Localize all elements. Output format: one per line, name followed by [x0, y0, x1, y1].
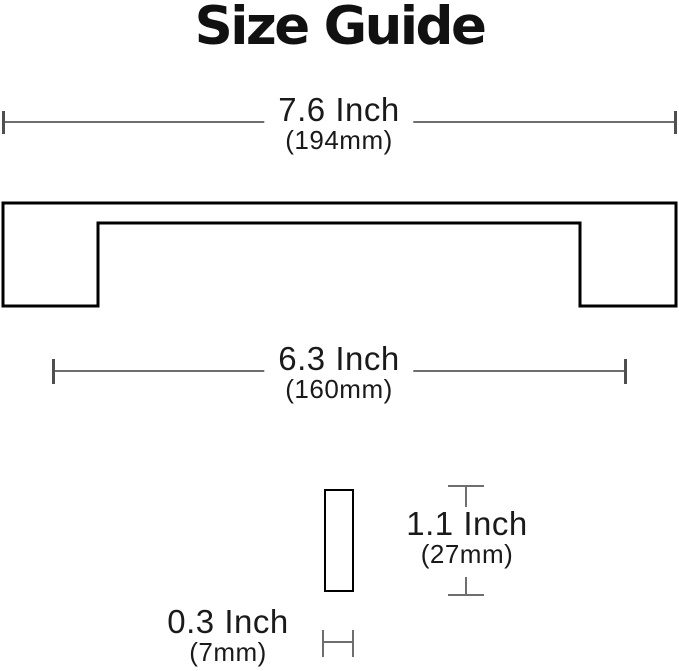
dimension-stem-top: [465, 487, 467, 507]
handle-side-profile: [324, 489, 354, 592]
dimension-label: 1.1 Inch (27mm): [402, 507, 531, 569]
dimension-line: [322, 641, 354, 643]
dimension-tick-left: [52, 359, 55, 384]
dimension-tick-right: [352, 630, 354, 657]
dimension-value-inch: 1.1 Inch: [406, 507, 527, 540]
dimension-value-inch: 6.3 Inch: [278, 342, 399, 375]
dimension-label: 6.3 Inch (160mm): [264, 342, 413, 404]
dimension-tick-left: [2, 111, 5, 134]
handle-outline: [3, 203, 676, 306]
dimension-value-mm: (27mm): [406, 540, 527, 569]
dimension-value-mm: (160mm): [278, 375, 399, 404]
dimension-value-mm: (7mm): [167, 638, 288, 667]
dimension-tick-right: [624, 359, 627, 384]
size-guide-diagram: Size Guide 7.6 Inch (194mm) 6.3 Inch (16…: [0, 0, 679, 671]
dimension-stem-bottom: [465, 577, 467, 594]
page-title: Size Guide: [0, 0, 679, 53]
dimension-value-inch: 0.3 Inch: [167, 605, 288, 638]
dimension-tick-right: [674, 111, 677, 134]
dimension-label: 7.6 Inch (194mm): [264, 93, 413, 155]
handle-front-profile: [0, 200, 679, 310]
dimension-tick-left: [322, 630, 324, 657]
dimension-value-mm: (194mm): [278, 126, 399, 155]
dimension-cap-bottom: [448, 594, 484, 596]
dimension-value-inch: 7.6 Inch: [278, 93, 399, 126]
dimension-label: 0.3 Inch (7mm): [163, 605, 292, 667]
